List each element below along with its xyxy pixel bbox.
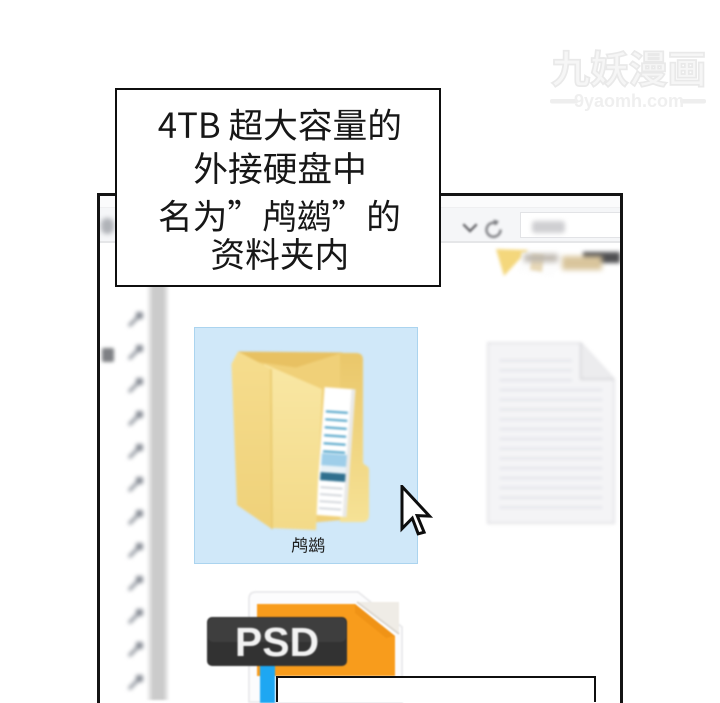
svg-text:PSD: PSD <box>235 619 319 665</box>
svg-text:9yaomh.com: 9yaomh.com <box>574 91 684 111</box>
